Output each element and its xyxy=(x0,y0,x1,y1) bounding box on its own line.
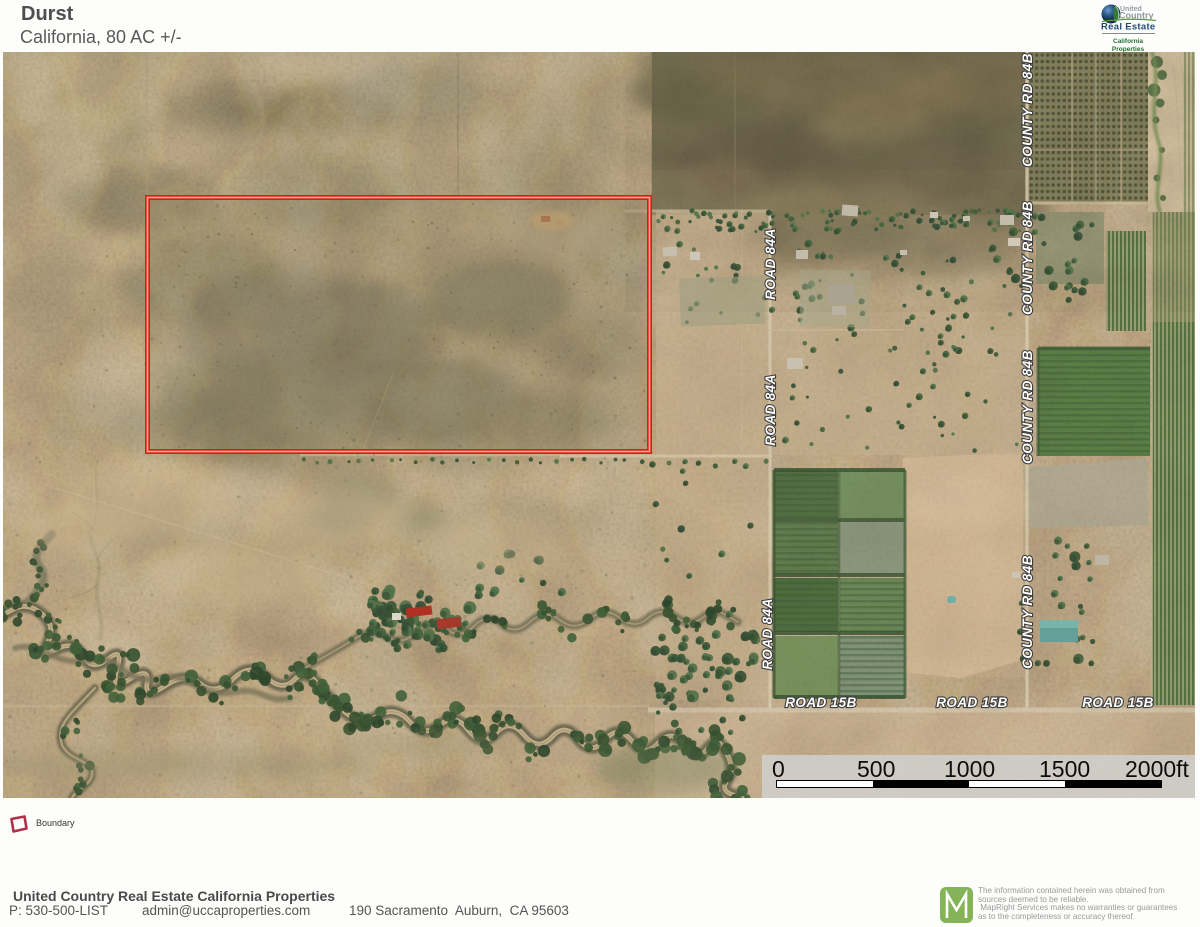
svg-text:Real Estate: Real Estate xyxy=(1101,22,1156,33)
svg-text:ROAD 84A: ROAD 84A xyxy=(763,228,778,299)
svg-text:ROAD 15B: ROAD 15B xyxy=(785,695,856,710)
svg-text:ROAD 84A: ROAD 84A xyxy=(763,374,778,445)
svg-text:ROAD 15B: ROAD 15B xyxy=(1082,695,1153,710)
svg-text:COUNTY RD 84B: COUNTY RD 84B xyxy=(1020,53,1035,167)
svg-text:COUNTY RD 84B: COUNTY RD 84B xyxy=(1020,350,1035,464)
svg-text:ROAD 84A: ROAD 84A xyxy=(760,598,775,669)
svg-text:ROAD 15B: ROAD 15B xyxy=(936,695,1007,710)
svg-text:COUNTY RD 84B: COUNTY RD 84B xyxy=(1020,201,1035,315)
svg-text:California: California xyxy=(1113,38,1143,45)
svg-text:COUNTY RD 84B: COUNTY RD 84B xyxy=(1020,555,1035,669)
